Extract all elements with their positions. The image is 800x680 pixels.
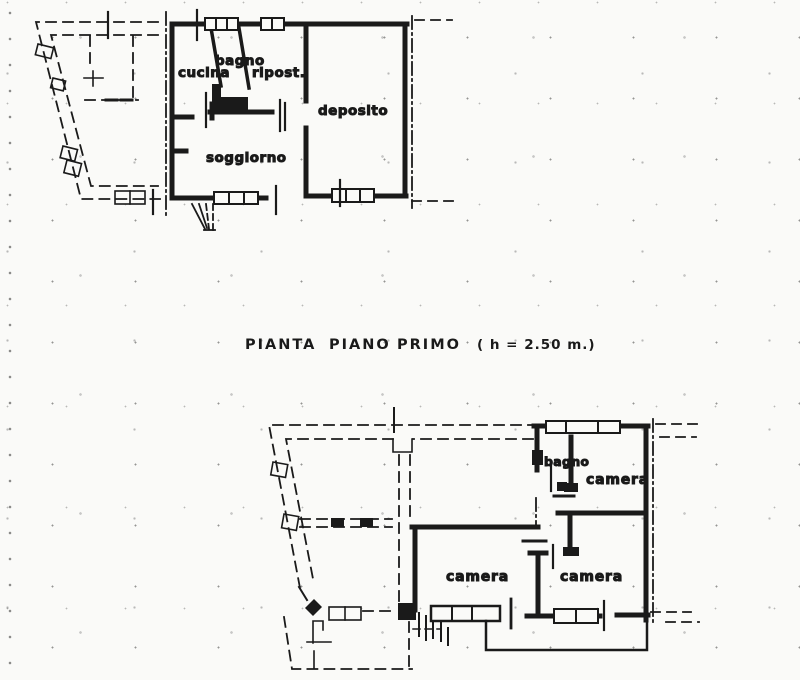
title-word-primo: PRIMO bbox=[397, 337, 461, 353]
plan-bottom: bagno camera camera camera bbox=[269, 408, 701, 669]
title-word-piano: PIANO bbox=[329, 337, 391, 353]
room-label-deposito: deposito bbox=[318, 103, 388, 119]
room-label-camera-top: camera bbox=[586, 472, 649, 488]
room-label-ripost: ripost. bbox=[252, 65, 305, 81]
floor-plan-drawing: cucina bagno ripost. soggiorno deposito … bbox=[0, 0, 800, 680]
plan-bottom-adjacent-details bbox=[271, 408, 412, 668]
bagno-fixture bbox=[532, 450, 543, 465]
plan-bottom-walls bbox=[412, 426, 648, 620]
plan-top-adjacent-dashed bbox=[36, 22, 160, 199]
room-label-soggiorno: soggiorno bbox=[206, 150, 287, 166]
plan-top-boundary-dashes bbox=[412, 20, 460, 201]
room-label-bagno-bottom: bagno bbox=[544, 454, 589, 469]
plan-top-door-swing-hatch bbox=[192, 204, 215, 231]
room-label-camera-right: camera bbox=[560, 569, 623, 585]
plan-bottom-adjacent-dashed bbox=[269, 425, 538, 669]
plan-bottom-boundary-dashes bbox=[651, 424, 701, 622]
title-word-pianta: PIANTA bbox=[245, 337, 316, 353]
plan-top: cucina bagno ripost. soggiorno deposito bbox=[35, 10, 460, 231]
scanned-floor-plan-sheet: cucina bagno ripost. soggiorno deposito … bbox=[0, 0, 800, 680]
plan-bottom-boundary-lines bbox=[536, 419, 653, 626]
room-label-camera-left: camera bbox=[446, 569, 509, 585]
plan-title: PIANTA PIANO PRIMO ( h = 2.50 m.) bbox=[245, 337, 596, 353]
title-height-note: ( h = 2.50 m.) bbox=[477, 337, 596, 353]
plan-top-fixture bbox=[212, 84, 248, 110]
stair-marker bbox=[305, 599, 322, 616]
plan-bottom-windows bbox=[431, 421, 620, 623]
